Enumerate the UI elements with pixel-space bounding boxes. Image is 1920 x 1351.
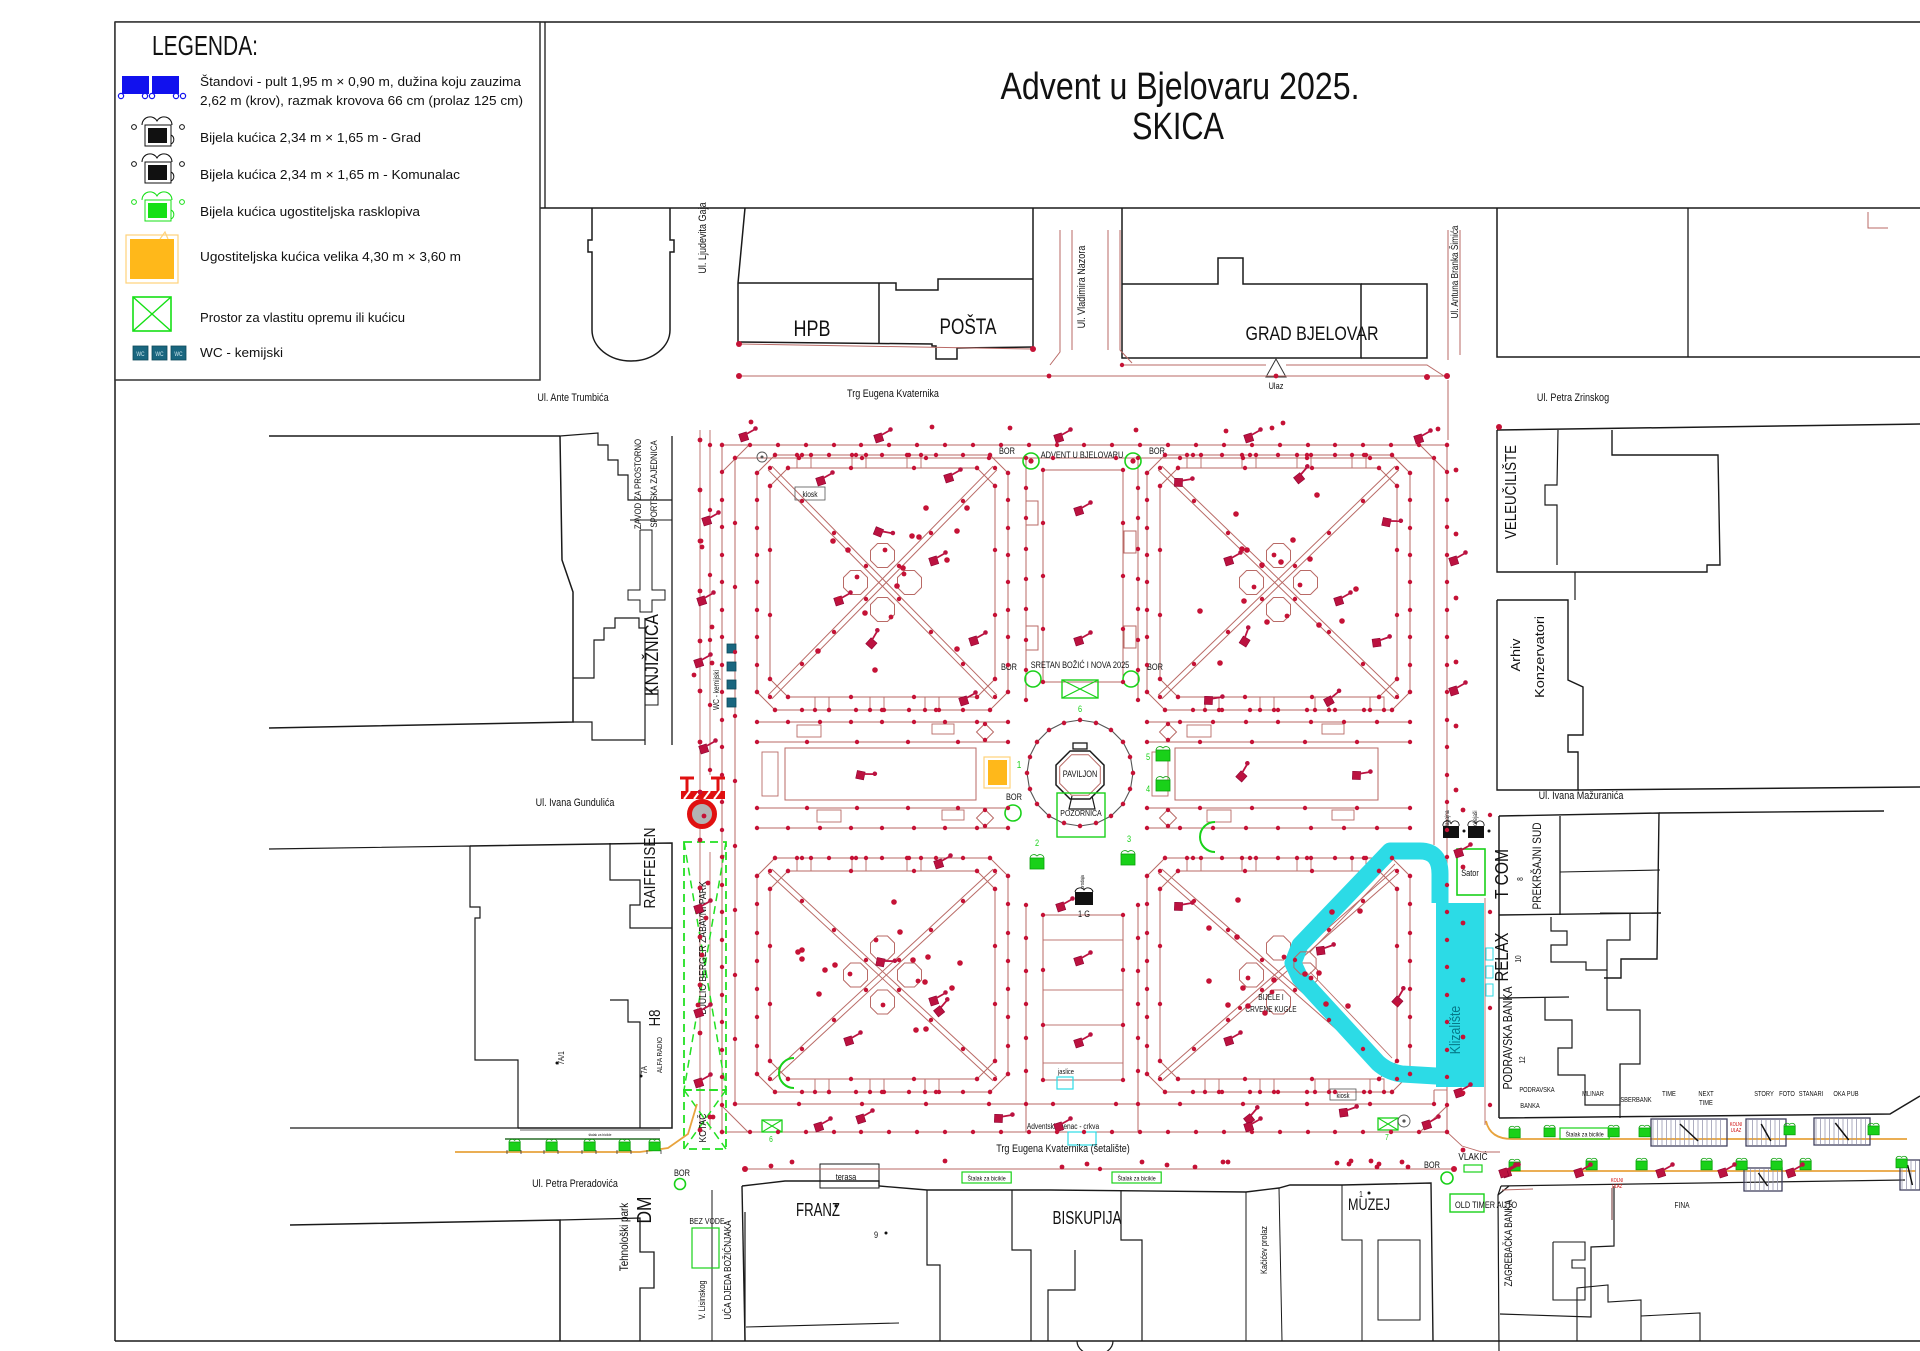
svg-text:Ul. Petra Zrinskog: Ul. Petra Zrinskog — [1537, 392, 1609, 404]
svg-text:PAVILJON: PAVILJON — [1063, 769, 1098, 779]
svg-text:BOR: BOR — [674, 1168, 690, 1178]
svg-text:TIME: TIME — [1699, 1100, 1713, 1107]
svg-text:ZAGREBAČKA BANKA: ZAGREBAČKA BANKA — [1502, 1199, 1515, 1286]
svg-text:BISKUPIJA: BISKUPIJA — [1053, 1208, 1122, 1228]
svg-text:ZAVOD ZA PROSTORNO: ZAVOD ZA PROSTORNO — [633, 439, 644, 529]
svg-text:BANKA: BANKA — [1520, 1103, 1540, 1110]
svg-text:Advent u Bjelovaru 2025.: Advent u Bjelovaru 2025. — [1001, 66, 1360, 108]
svg-text:Ul. Antuna Branka Šimića: Ul. Antuna Branka Šimića — [1448, 225, 1461, 318]
svg-text:PODRAVSKA: PODRAVSKA — [1519, 1087, 1555, 1094]
svg-text:UĆA DJEDA BOŽIĆNJAKA: UĆA DJEDA BOŽIĆNJAKA — [721, 1220, 734, 1320]
svg-text:Ulaz: Ulaz — [1269, 381, 1284, 391]
svg-text:HPB: HPB — [794, 316, 831, 341]
svg-text:BOR: BOR — [1424, 1160, 1440, 1170]
svg-text:2: 2 — [1035, 838, 1039, 848]
svg-text:CRVENE KUGLE: CRVENE KUGLE — [1245, 1005, 1296, 1014]
svg-text:KOTAČ: KOTAČ — [696, 1113, 709, 1142]
svg-text:Štalak za bicikle: Štalak za bicikle — [1566, 1130, 1605, 1139]
svg-text:POZORNICA: POZORNICA — [1060, 808, 1102, 818]
svg-text:1 G: 1 G — [1078, 909, 1090, 919]
svg-text:6: 6 — [1078, 704, 1082, 714]
svg-text:Blagajna: Blagajna — [1445, 810, 1451, 830]
svg-text:BIJELE I: BIJELE I — [1258, 993, 1284, 1002]
svg-text:POŠTA: POŠTA — [940, 314, 997, 339]
svg-text:BOR: BOR — [999, 446, 1015, 456]
svg-text:prodaja: prodaja — [1080, 875, 1086, 889]
svg-text:Ul. Petra Preradovića: Ul. Petra Preradovića — [532, 1178, 618, 1190]
svg-text:STANARI: STANARI — [1799, 1091, 1824, 1098]
svg-text:GRAD BJELOVAR: GRAD BJELOVAR — [1246, 324, 1379, 345]
svg-text:KNJIŽNICA: KNJIŽNICA — [642, 614, 662, 696]
svg-text:1: 1 — [1017, 760, 1022, 771]
svg-text:WC: WC — [155, 352, 164, 358]
svg-text:DM: DM — [634, 1197, 656, 1224]
svg-text:LEGENDA:: LEGENDA: — [152, 30, 258, 61]
svg-text:Prostor za vlastitu opremu ili: Prostor za vlastitu opremu ili kućicu — [200, 310, 405, 325]
svg-text:3: 3 — [1127, 834, 1131, 844]
svg-text:T COM: T COM — [1492, 849, 1512, 899]
svg-text:FOTO: FOTO — [1779, 1091, 1795, 1098]
svg-text:12: 12 — [1518, 1056, 1527, 1064]
svg-text:terasa: terasa — [836, 1172, 857, 1182]
svg-text:NEXT: NEXT — [1698, 1091, 1714, 1098]
svg-text:BOR: BOR — [1006, 792, 1022, 802]
svg-text:jaslice: jaslice — [1057, 1069, 1074, 1076]
svg-text:Ugostiteljska kućica velika 4,: Ugostiteljska kućica velika 4,30 m × 3,6… — [200, 249, 461, 264]
svg-text:ULAZ: ULAZ — [1731, 1128, 1742, 1134]
svg-text:Bijela kućica ugostiteljska ra: Bijela kućica ugostiteljska rasklopiva — [200, 204, 421, 219]
svg-text:Šator: Šator — [1461, 868, 1479, 878]
svg-text:2,62 m (krov), razmak krovova: 2,62 m (krov), razmak krovova 66 cm (pro… — [200, 93, 523, 108]
svg-text:Štandovi - pult 1,95 m × 0,90: Štandovi - pult 1,95 m × 0,90 m, dužina … — [200, 74, 522, 89]
svg-text:Tehnološki park: Tehnološki park — [617, 1202, 631, 1271]
svg-text:Ul. Ante Trumbića: Ul. Ante Trumbića — [537, 392, 609, 404]
svg-text:WC - kemijski: WC - kemijski — [712, 670, 721, 710]
svg-text:TIME: TIME — [1662, 1091, 1676, 1098]
svg-text:Hokejaši: Hokejaši — [1473, 811, 1479, 830]
svg-text:4: 4 — [1146, 784, 1150, 794]
svg-text:kiosk: kiosk — [803, 490, 819, 499]
svg-text:Ul. Ivana Mažuranića: Ul. Ivana Mažuranića — [1539, 790, 1624, 802]
svg-text:Arhiv: Arhiv — [1508, 638, 1523, 672]
svg-text:BEZ VODE: BEZ VODE — [689, 1216, 724, 1226]
svg-text:8: 8 — [1516, 877, 1525, 881]
svg-text:Klizalište: Klizalište — [1447, 1006, 1464, 1055]
svg-text:Ul. Vladimira Nazora: Ul. Vladimira Nazora — [1076, 245, 1088, 328]
svg-text:SKICA: SKICA — [1132, 106, 1225, 148]
svg-text:Trg Eugena Kvaternika (šetališ: Trg Eugena Kvaternika (šetalište) — [996, 1143, 1130, 1155]
svg-text:MUZEJ: MUZEJ — [1348, 1195, 1390, 1214]
svg-text:RAIFFEISEN: RAIFFEISEN — [642, 828, 659, 909]
svg-text:RELAX: RELAX — [1492, 933, 1512, 982]
svg-text:Bijela kućica 2,34 m × 1,65 m: Bijela kućica 2,34 m × 1,65 m - Komunala… — [200, 167, 461, 182]
svg-text:7: 7 — [1385, 1133, 1389, 1142]
svg-text:SBERBANK: SBERBANK — [1620, 1097, 1652, 1104]
svg-text:WC: WC — [136, 352, 145, 358]
svg-text:štalak za bicikle: štalak za bicikle — [589, 1132, 613, 1137]
svg-text:FRANZ: FRANZ — [796, 1200, 840, 1220]
svg-text:SRETAN BOŽIĆ I NOVA 2025: SRETAN BOŽIĆ I NOVA 2025 — [1031, 660, 1130, 670]
svg-text:6: 6 — [769, 1135, 773, 1144]
svg-text:PODRAVSKA BANKA: PODRAVSKA BANKA — [1500, 986, 1515, 1089]
svg-text:WC: WC — [174, 352, 183, 358]
svg-text:Ul. Ivana Gundulića: Ul. Ivana Gundulića — [536, 797, 615, 809]
svg-text:PREKRŠAJNI SUD: PREKRŠAJNI SUD — [1531, 823, 1544, 910]
svg-text:ALFA RADIO: ALFA RADIO — [655, 1037, 664, 1073]
svg-text:Kačićev prolaz: Kačićev prolaz — [1259, 1226, 1269, 1274]
svg-text:Štalak za bicikle: Štalak za bicikle — [1118, 1174, 1157, 1183]
svg-text:OLD TIMER AUTO: OLD TIMER AUTO — [1455, 1200, 1517, 1210]
svg-text:10: 10 — [1514, 955, 1523, 963]
svg-text:BOR: BOR — [1147, 662, 1163, 672]
svg-text:DJULIO BERGER ZABAVNI PARK: DJULIO BERGER ZABAVNI PARK — [697, 881, 709, 1014]
svg-text:STORY: STORY — [1754, 1091, 1774, 1098]
svg-text:1: 1 — [1359, 1190, 1363, 1199]
svg-text:Štalak za bicikle: Štalak za bicikle — [968, 1174, 1007, 1183]
svg-text:ULAZ: ULAZ — [1612, 1184, 1623, 1190]
svg-text:VELEUČILIŠTE: VELEUČILIŠTE — [1501, 445, 1520, 539]
svg-text:FINA: FINA — [1675, 1201, 1691, 1210]
svg-text:H8: H8 — [647, 1010, 664, 1027]
svg-text:MLINAR: MLINAR — [1582, 1091, 1604, 1098]
svg-text:V. Lisinskog: V. Lisinskog — [697, 1280, 707, 1319]
svg-text:5: 5 — [1146, 752, 1150, 762]
svg-text:SPORTSKA ZAJEDNICA: SPORTSKA ZAJEDNICA — [649, 440, 660, 528]
svg-text:9: 9 — [874, 1230, 878, 1240]
svg-text:7A: 7A — [640, 1065, 649, 1074]
svg-text:kiosk: kiosk — [1336, 1093, 1350, 1100]
svg-text:OKA PUB: OKA PUB — [1833, 1091, 1858, 1098]
svg-text:Bijela kućica 2,34 m × 1,65 m: Bijela kućica 2,34 m × 1,65 m - Grad — [200, 130, 421, 145]
svg-text:WC - kemijski: WC - kemijski — [200, 345, 283, 360]
svg-text:Trg Eugena Kvaternika: Trg Eugena Kvaternika — [847, 388, 940, 400]
svg-text:Ul. Ljudevita Gaja: Ul. Ljudevita Gaja — [697, 202, 709, 274]
svg-text:Konzervatori: Konzervatori — [1532, 616, 1547, 698]
